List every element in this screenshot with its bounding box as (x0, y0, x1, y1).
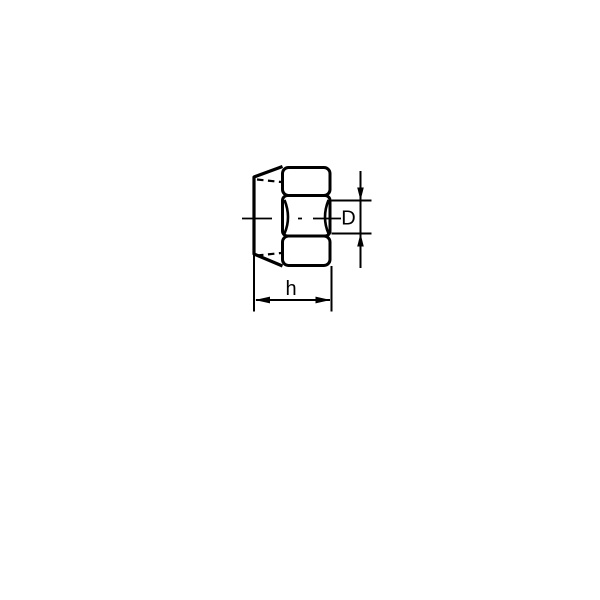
dim-D-arrow-top-icon (357, 188, 364, 201)
dim-h-arrow-right-icon (316, 297, 331, 304)
hex-face-top (283, 168, 331, 196)
dim-h-arrow-left-icon (255, 297, 270, 304)
dim-D-arrow-bottom-icon (357, 234, 364, 247)
chamfer-arc-right (325, 200, 329, 234)
drawing-canvas: D h (0, 0, 600, 600)
hidden-edge-bottom-icon (257, 253, 281, 256)
dim-h-label: h (285, 278, 296, 300)
nut-linework (242, 167, 341, 267)
chamfer-arc-left (285, 200, 289, 234)
hex-nut-technical-drawing: D h (0, 0, 600, 600)
hex-face-bottom (283, 236, 331, 266)
dim-D-label: D (341, 208, 355, 230)
hex-face-middle (283, 196, 331, 237)
hidden-edge-top-icon (257, 180, 281, 183)
